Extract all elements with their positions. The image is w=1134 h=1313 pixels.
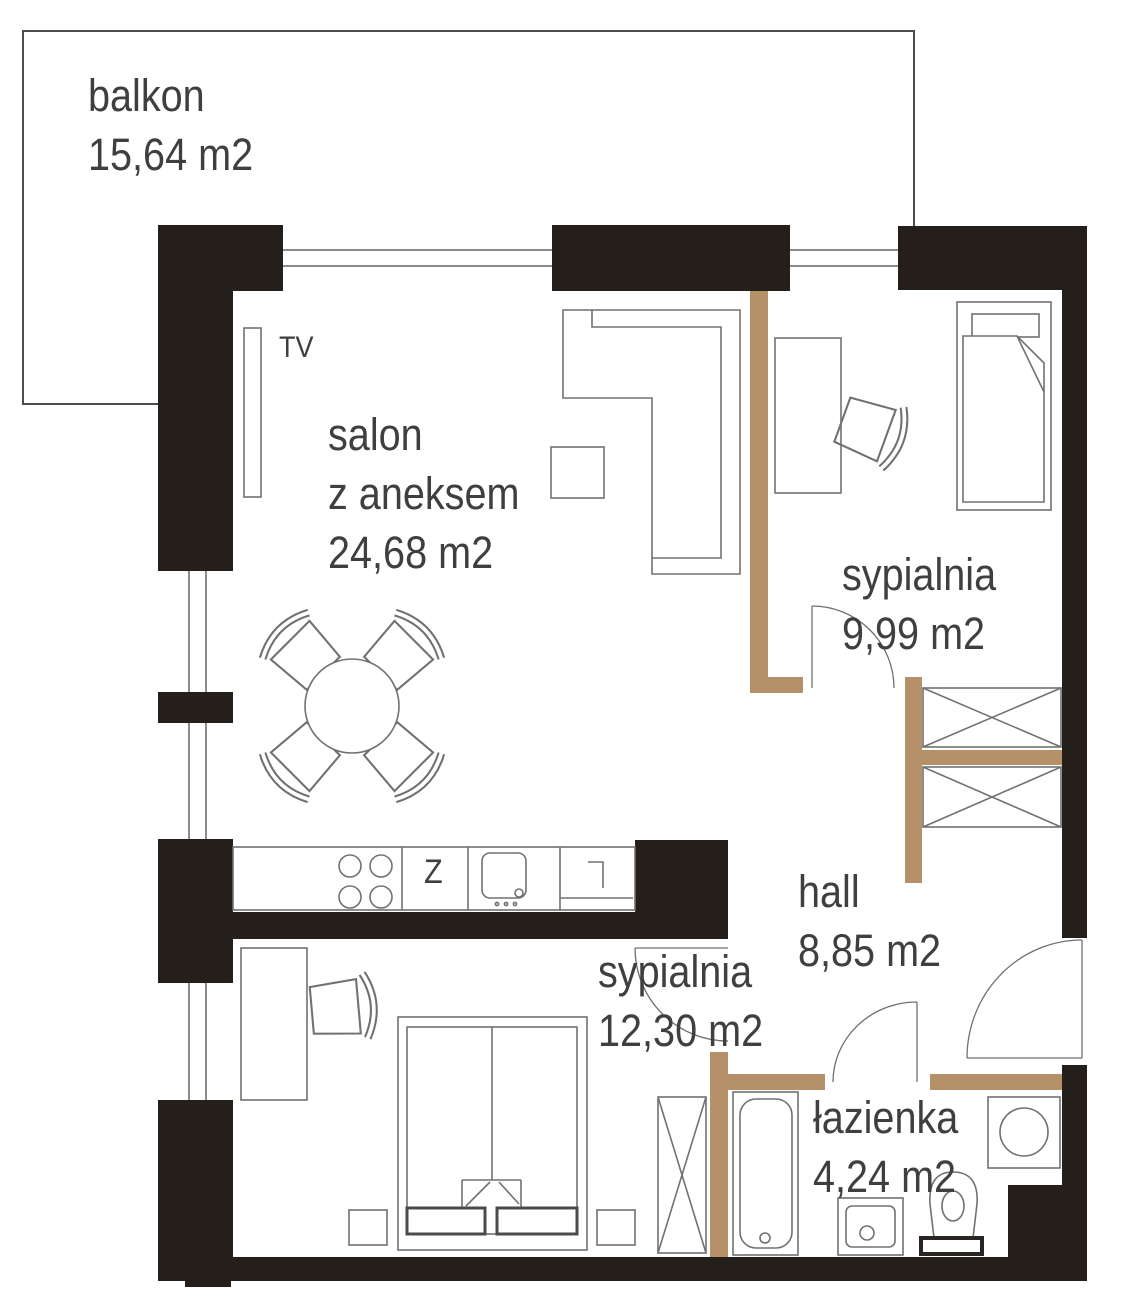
desk-bedroom2 — [241, 948, 380, 1100]
room-name: łazienka — [813, 1088, 958, 1147]
pillow-left — [407, 1208, 485, 1234]
room-name-2: z aneksem — [328, 464, 519, 523]
room-name: sypialnia — [598, 942, 763, 1001]
desk-chair-bedroom1 — [831, 388, 915, 474]
label-kitchen-z: Z — [424, 857, 443, 887]
coffee-table — [551, 447, 604, 498]
bed-bedroom1 — [957, 302, 1051, 510]
wardrobe-hall-top — [923, 688, 1061, 747]
label-balkon: balkon 15,64 m2 — [88, 66, 253, 184]
bathtub — [733, 1092, 798, 1255]
toilet-tank — [921, 1238, 982, 1254]
room-name: salon — [328, 405, 519, 464]
desk-chair-bedroom2 — [309, 971, 380, 1044]
door-bathroom — [833, 1002, 917, 1082]
cooktop-burners — [339, 855, 392, 908]
room-name: balkon — [88, 66, 253, 125]
nightstand-left — [349, 1210, 387, 1245]
room-name: sypialnia — [842, 545, 996, 604]
nightstand-right — [597, 1210, 635, 1245]
label-tv: TV — [279, 333, 314, 363]
room-area: 15,64 m2 — [88, 125, 253, 184]
wardrobe-bedroom2 — [658, 1097, 706, 1253]
washbasin — [838, 1198, 903, 1255]
label-salon: salon z aneksem 24,68 m2 — [328, 405, 519, 582]
room-name: hall — [798, 862, 941, 921]
dining-table — [305, 659, 399, 753]
sofa — [563, 310, 740, 574]
washing-machine — [988, 1097, 1060, 1168]
wardrobe-hall-bottom — [923, 767, 1061, 827]
label-lazienka: łazienka 4,24 m2 — [813, 1088, 958, 1206]
pillow-right — [497, 1208, 577, 1234]
label-sypialnia-2: sypialnia 12,30 m2 — [598, 942, 763, 1060]
door-entrance — [967, 940, 1082, 1058]
fridge-symbol — [560, 862, 633, 898]
room-area: 12,30 m2 — [598, 1001, 763, 1060]
dining-set — [253, 603, 450, 808]
bed-bedroom2 — [398, 1017, 587, 1250]
label-hall: hall 8,85 m2 — [798, 862, 941, 980]
floor-plan: balkon 15,64 m2 salon z aneksem 24,68 m2… — [0, 0, 1134, 1313]
blanket-bedroom1 — [963, 336, 1044, 502]
room-area: 4,24 m2 — [813, 1147, 958, 1206]
room-area: 24,68 m2 — [328, 523, 519, 582]
room-area: 8,85 m2 — [798, 921, 941, 980]
pillow-bedroom1 — [972, 314, 1039, 337]
label-sypialnia-1: sypialnia 9,99 m2 — [842, 545, 996, 663]
tv-unit — [244, 328, 261, 497]
kitchen-sink — [482, 853, 526, 906]
desk-bedroom1 — [775, 338, 915, 493]
room-area: 9,99 m2 — [842, 604, 996, 663]
